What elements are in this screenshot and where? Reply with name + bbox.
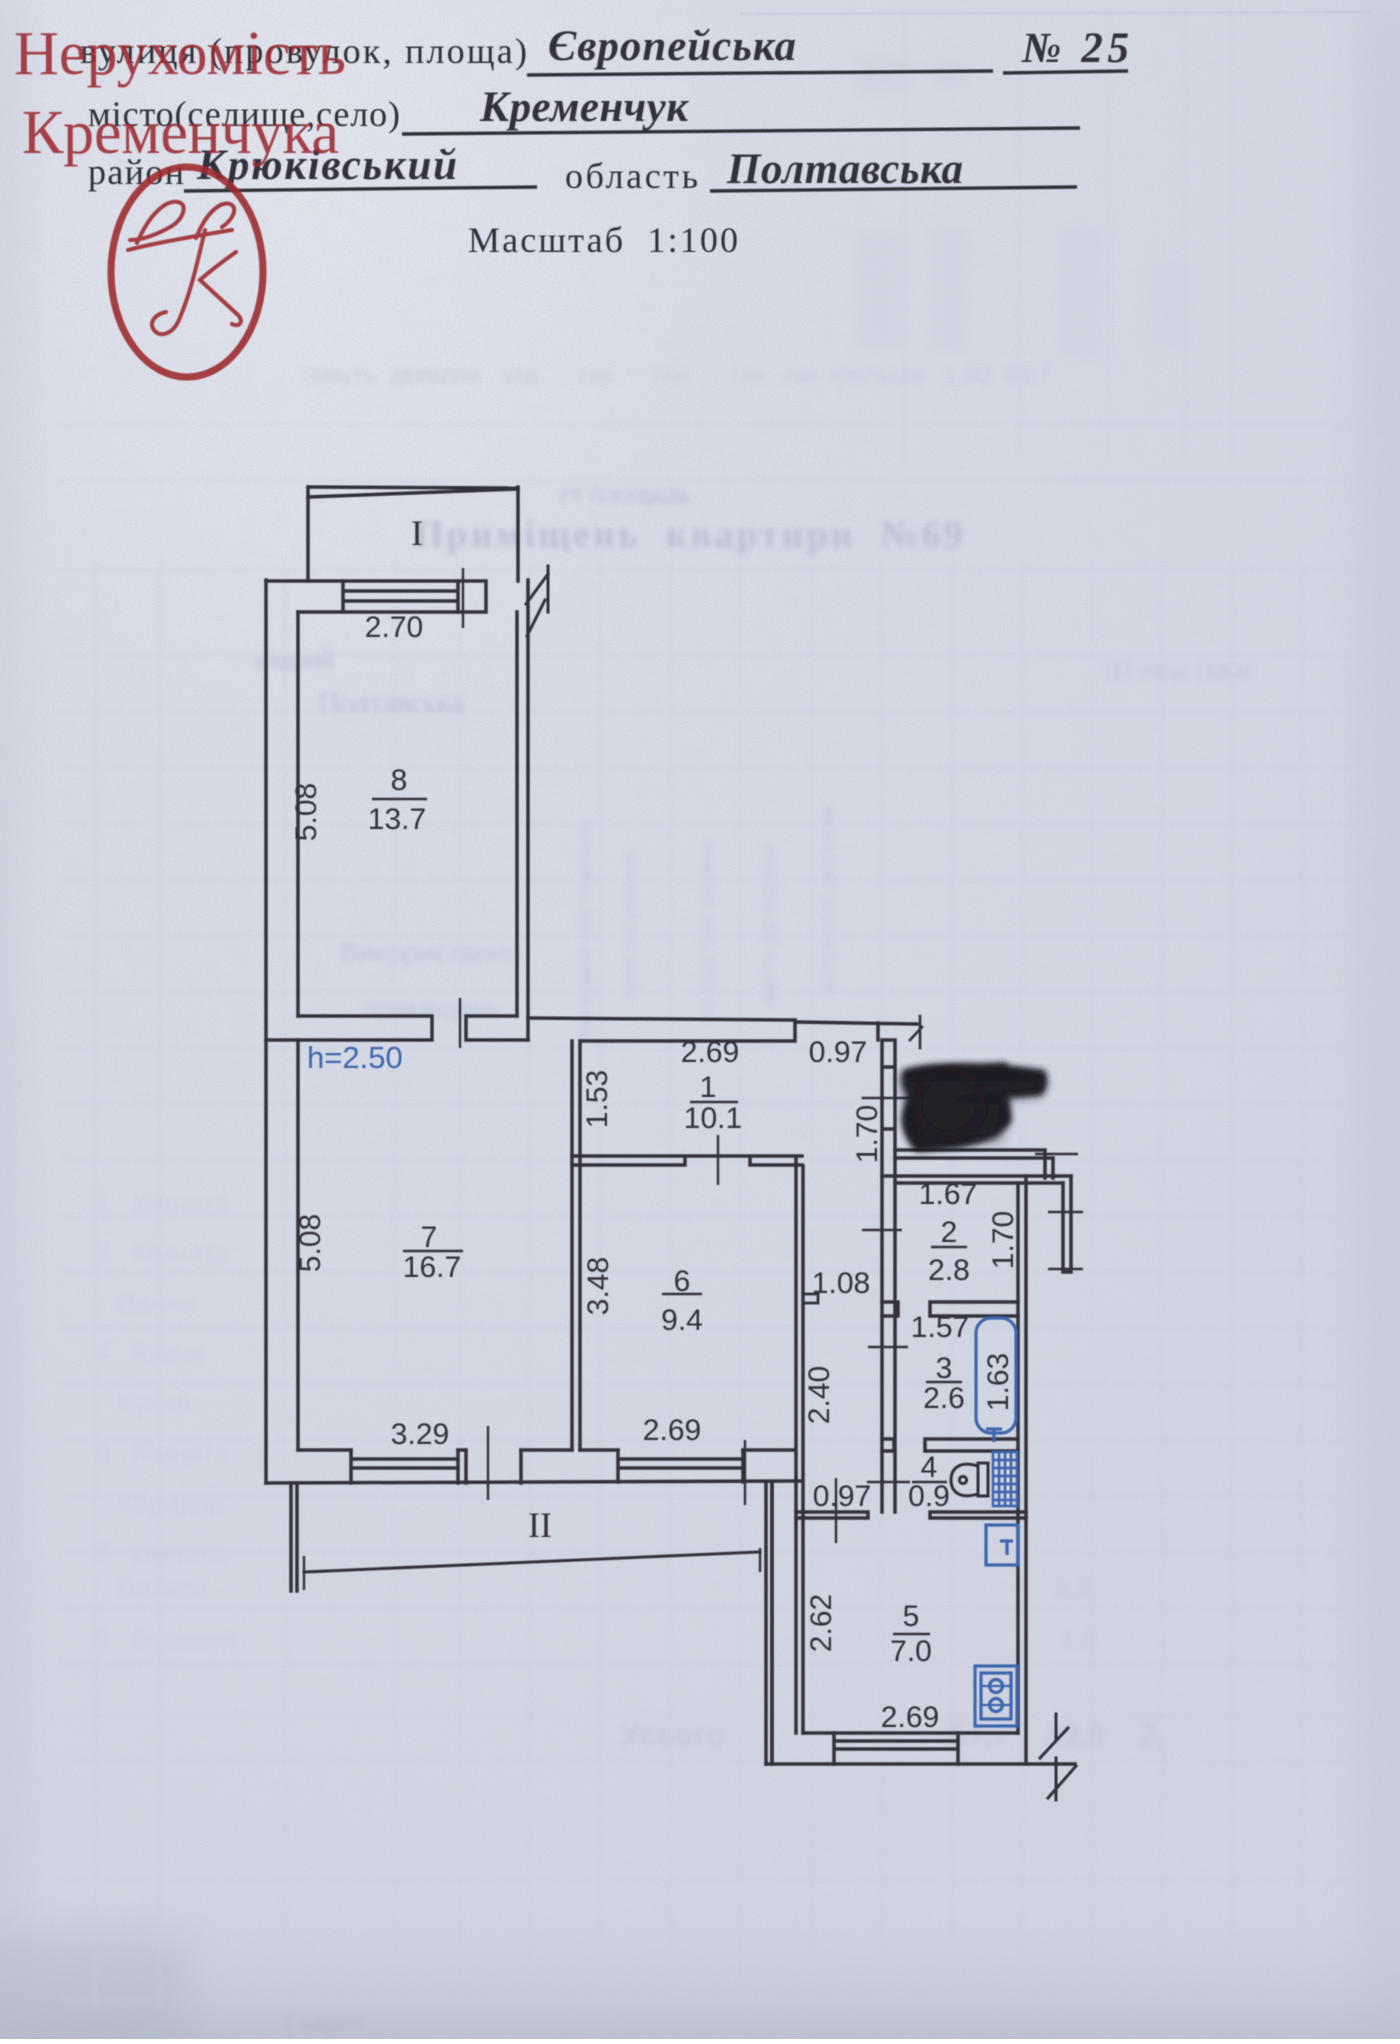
svg-text:область: область bbox=[565, 156, 698, 196]
svg-text:2.8: 2.8 bbox=[928, 1254, 970, 1287]
svg-text:1.53: 1.53 bbox=[581, 1070, 614, 1128]
svg-text:13.7: 13.7 bbox=[368, 803, 426, 836]
svg-text:Нерухомість: Нерухомість bbox=[14, 20, 346, 88]
svg-text:8: 8 bbox=[391, 764, 408, 797]
svg-text:Балкон: Балкон bbox=[118, 1573, 209, 1603]
svg-text:Усього: Усього bbox=[620, 1717, 726, 1752]
svg-text:1: 1 bbox=[700, 1071, 717, 1104]
svg-text:(Площа (кв.м: (Площа (кв.м bbox=[1105, 655, 1253, 684]
svg-text:h=2.50: h=2.50 bbox=[307, 1040, 403, 1075]
svg-text:1.63: 1.63 bbox=[982, 1353, 1015, 1411]
svg-text:8 кімната: 8 кімната bbox=[95, 1538, 226, 1568]
svg-text:7: 7 bbox=[421, 1221, 438, 1254]
svg-text:4 Кухня: 4 Кухня bbox=[95, 1338, 205, 1368]
svg-text:16.7: 16.7 bbox=[403, 1251, 461, 1284]
svg-text:Кременчука: Кременчука bbox=[22, 99, 339, 167]
svg-text:висновки обстеження: висновки обстеження bbox=[572, 820, 597, 1040]
svg-text:Ванна: Ванна bbox=[118, 1288, 197, 1318]
svg-text:1.57: 1.57 bbox=[911, 1311, 969, 1344]
svg-text:1.67: 1.67 bbox=[919, 1178, 977, 1211]
svg-text:Кухня: Кухня bbox=[118, 1388, 190, 1418]
svg-text:3.29: 3.29 bbox=[391, 1418, 449, 1451]
svg-text:0.9: 0.9 bbox=[908, 1480, 950, 1513]
svg-text:6 Кімната: 6 Кімната bbox=[95, 1438, 230, 1468]
svg-text:2.40: 2.40 bbox=[803, 1366, 836, 1424]
svg-text:2.62: 2.62 bbox=[805, 1594, 838, 1652]
svg-text:1.70: 1.70 bbox=[987, 1211, 1020, 1269]
svg-text:II: II bbox=[528, 1505, 552, 1545]
svg-text:( нарпт.: ( нарпт. bbox=[285, 2011, 368, 2038]
svg-text:2.69: 2.69 bbox=[681, 1036, 739, 1069]
svg-text:Приміщень квартири №69: Приміщень квартири №69 bbox=[414, 514, 966, 556]
svg-text:взяти до відома: взяти до відома bbox=[755, 843, 780, 1006]
svg-text:2: 2 bbox=[941, 1216, 958, 1249]
svg-text:на підставі рішень: на підставі рішень bbox=[693, 837, 718, 1024]
svg-text:Коридор: Коридор bbox=[118, 1488, 225, 1518]
svg-text:1.08: 1.08 bbox=[812, 1267, 870, 1300]
svg-text:Використання: Використання bbox=[340, 937, 522, 968]
svg-text:7.0: 7.0 bbox=[890, 1635, 932, 1668]
svg-text:Полтавська: Полтавська bbox=[318, 686, 464, 719]
svg-text:0.97: 0.97 bbox=[809, 1036, 867, 1069]
svg-text:5.08: 5.08 bbox=[294, 1214, 327, 1272]
svg-text:9 балкони: 9 балкони bbox=[95, 1624, 235, 1654]
svg-text:0.97: 0.97 bbox=[813, 1480, 871, 1513]
svg-text:1.70: 1.70 bbox=[851, 1105, 884, 1163]
svg-text:Полтавська: Полтавська bbox=[726, 146, 963, 193]
svg-text:Кременчук: Кременчук bbox=[479, 84, 689, 131]
svg-text:2.69: 2.69 bbox=[881, 1701, 939, 1734]
svg-text:гт площадь: гт площадь bbox=[560, 478, 690, 508]
svg-text:8,9: 8,9 bbox=[1055, 1573, 1091, 1603]
svg-text:2.69: 2.69 bbox=[643, 1414, 701, 1447]
svg-text:10.1: 10.1 bbox=[684, 1102, 742, 1135]
svg-text:3.48: 3.48 bbox=[582, 1257, 615, 1315]
svg-text:5.08: 5.08 bbox=[290, 783, 323, 841]
svg-text:1 Кімната: 1 Кімната bbox=[95, 1188, 230, 1218]
svg-text:Європейська: Європейська bbox=[548, 23, 796, 70]
svg-text:пристосування: пристосування bbox=[617, 849, 642, 1000]
svg-text:2.70: 2.70 bbox=[365, 611, 423, 644]
svg-text:твмуть двявлпя чтд так: твмуть двявлпя чтд так тон так ляг-тролш… bbox=[300, 362, 1051, 389]
svg-text:2.6: 2.6 bbox=[923, 1382, 965, 1415]
svg-text:1,6: 1,6 bbox=[1060, 1624, 1096, 1654]
svg-text:5: 5 bbox=[903, 1600, 920, 1633]
svg-text:9.4: 9.4 bbox=[661, 1304, 703, 1337]
svg-text:антресолі деревян: антресолі деревян bbox=[815, 805, 840, 996]
svg-text:2 Кімната: 2 Кімната bbox=[95, 1238, 230, 1268]
svg-text:3: 3 bbox=[936, 1352, 953, 1385]
svg-text:I: I bbox=[411, 513, 423, 553]
svg-text:№ 25: № 25 bbox=[1021, 25, 1129, 72]
